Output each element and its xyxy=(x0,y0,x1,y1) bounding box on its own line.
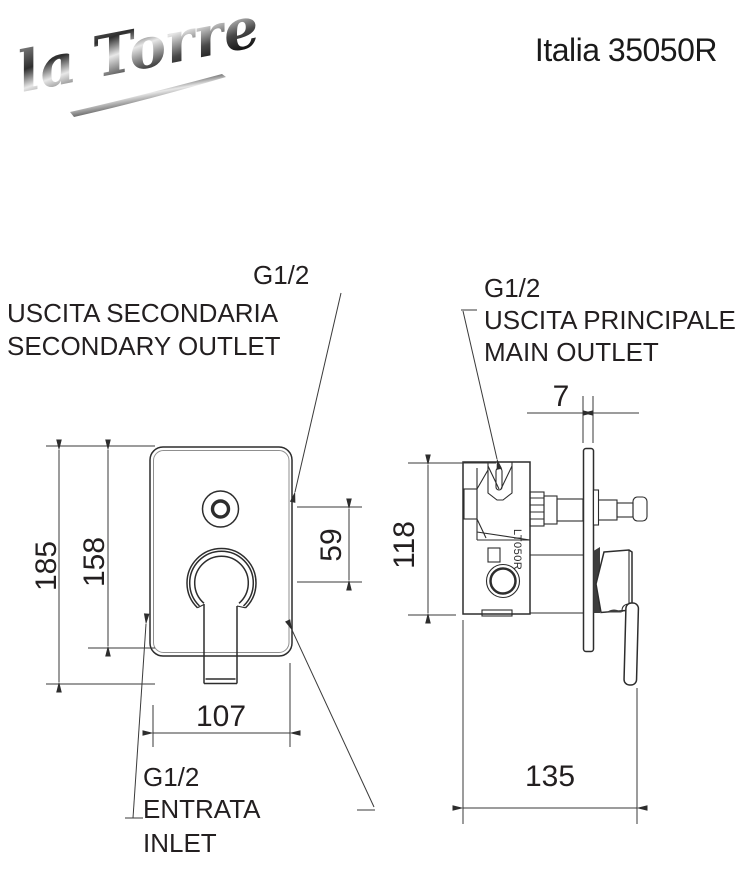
secondary-outlet-thread: G1/2 xyxy=(253,260,309,290)
side-labels: G1/2 USCITA PRINCIPALE MAIN OUTLET xyxy=(461,273,736,459)
side-handle xyxy=(594,547,639,685)
brand-logo: la Torre xyxy=(12,0,264,117)
dim-158: 158 xyxy=(78,537,111,587)
dim-7: 7 xyxy=(553,380,570,413)
main-outlet-line1: USCITA PRINCIPALE xyxy=(484,305,736,335)
inlet-line1: ENTRATA xyxy=(143,794,261,824)
secondary-outlet-line2: SECONDARY OUTLET xyxy=(7,331,281,361)
main-outlet-thread: G1/2 xyxy=(484,273,540,303)
dim-185: 185 xyxy=(30,541,63,591)
page-title: Italia 35050R xyxy=(535,32,717,68)
side-cartridge: LT050R xyxy=(464,462,583,616)
side-lever xyxy=(624,603,639,685)
main-outlet-line2: MAIN OUTLET xyxy=(484,337,659,367)
side-view: LT050R xyxy=(463,449,647,686)
diverter-button xyxy=(203,491,239,527)
brand-logo-text: la Torre xyxy=(12,0,264,106)
leader-inlet-right xyxy=(292,630,374,807)
stem-sleeve xyxy=(594,490,599,525)
front-lever xyxy=(204,604,237,684)
front-view xyxy=(150,447,292,684)
diverter-knob xyxy=(633,497,647,521)
front-dimensions: 185 158 59 107 xyxy=(30,446,362,747)
inlet-line2: INLET xyxy=(143,828,217,858)
secondary-outlet-line1: USCITA SECONDARIA xyxy=(7,298,279,328)
leader-secondary-outlet xyxy=(295,293,341,492)
dim-59: 59 xyxy=(315,528,348,561)
front-handle xyxy=(187,549,256,684)
technical-drawing: la Torre Italia 35050R 185 158 xyxy=(0,0,740,871)
wall-plate-side xyxy=(584,449,594,652)
cartridge-marking: LT050R xyxy=(511,529,523,570)
dim-135: 135 xyxy=(525,760,575,793)
dim-118: 118 xyxy=(388,521,421,569)
inlet-thread: G1/2 xyxy=(143,762,199,792)
dim-107: 107 xyxy=(196,700,246,733)
